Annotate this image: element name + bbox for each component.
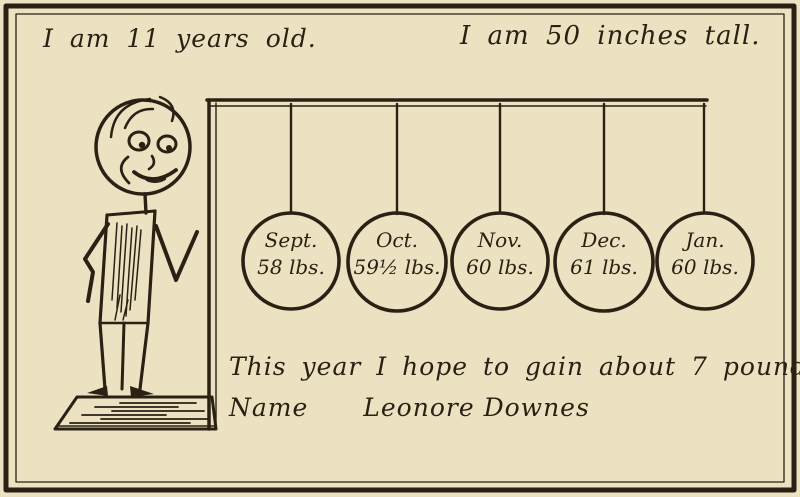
figure-mouth <box>134 170 176 179</box>
hanging-strings <box>291 104 704 214</box>
figure-legs <box>100 323 148 389</box>
figure-shirt <box>100 211 155 323</box>
height-text: I am 50 inches tall. <box>460 21 761 51</box>
figure-cheek <box>121 157 129 183</box>
name-label: Name <box>229 393 308 422</box>
hope-text: This year I hope to gain about 7 pounds. <box>229 352 800 381</box>
figure-eyes <box>129 132 176 152</box>
figure-neck <box>145 194 146 213</box>
figure-nose <box>149 156 154 169</box>
weight-record-card: I am 11 years old. I am 50 inches tall. … <box>0 0 800 497</box>
name-value: Leonore Downes <box>363 393 590 422</box>
name-row: NameLeonore Downes <box>229 393 590 422</box>
scale-platform <box>55 397 216 429</box>
platform-hatching <box>70 403 208 423</box>
weight-label: 60 lbs. <box>640 254 770 281</box>
figure-feet <box>87 386 154 397</box>
stick-figure <box>85 97 197 397</box>
weight-entry-jan: Jan. 60 lbs. <box>640 227 770 281</box>
shirt-hatching <box>112 223 141 320</box>
month-label: Jan. <box>640 227 770 254</box>
figure-right-arm <box>156 226 197 280</box>
age-text: I am 11 years old. <box>43 24 317 53</box>
